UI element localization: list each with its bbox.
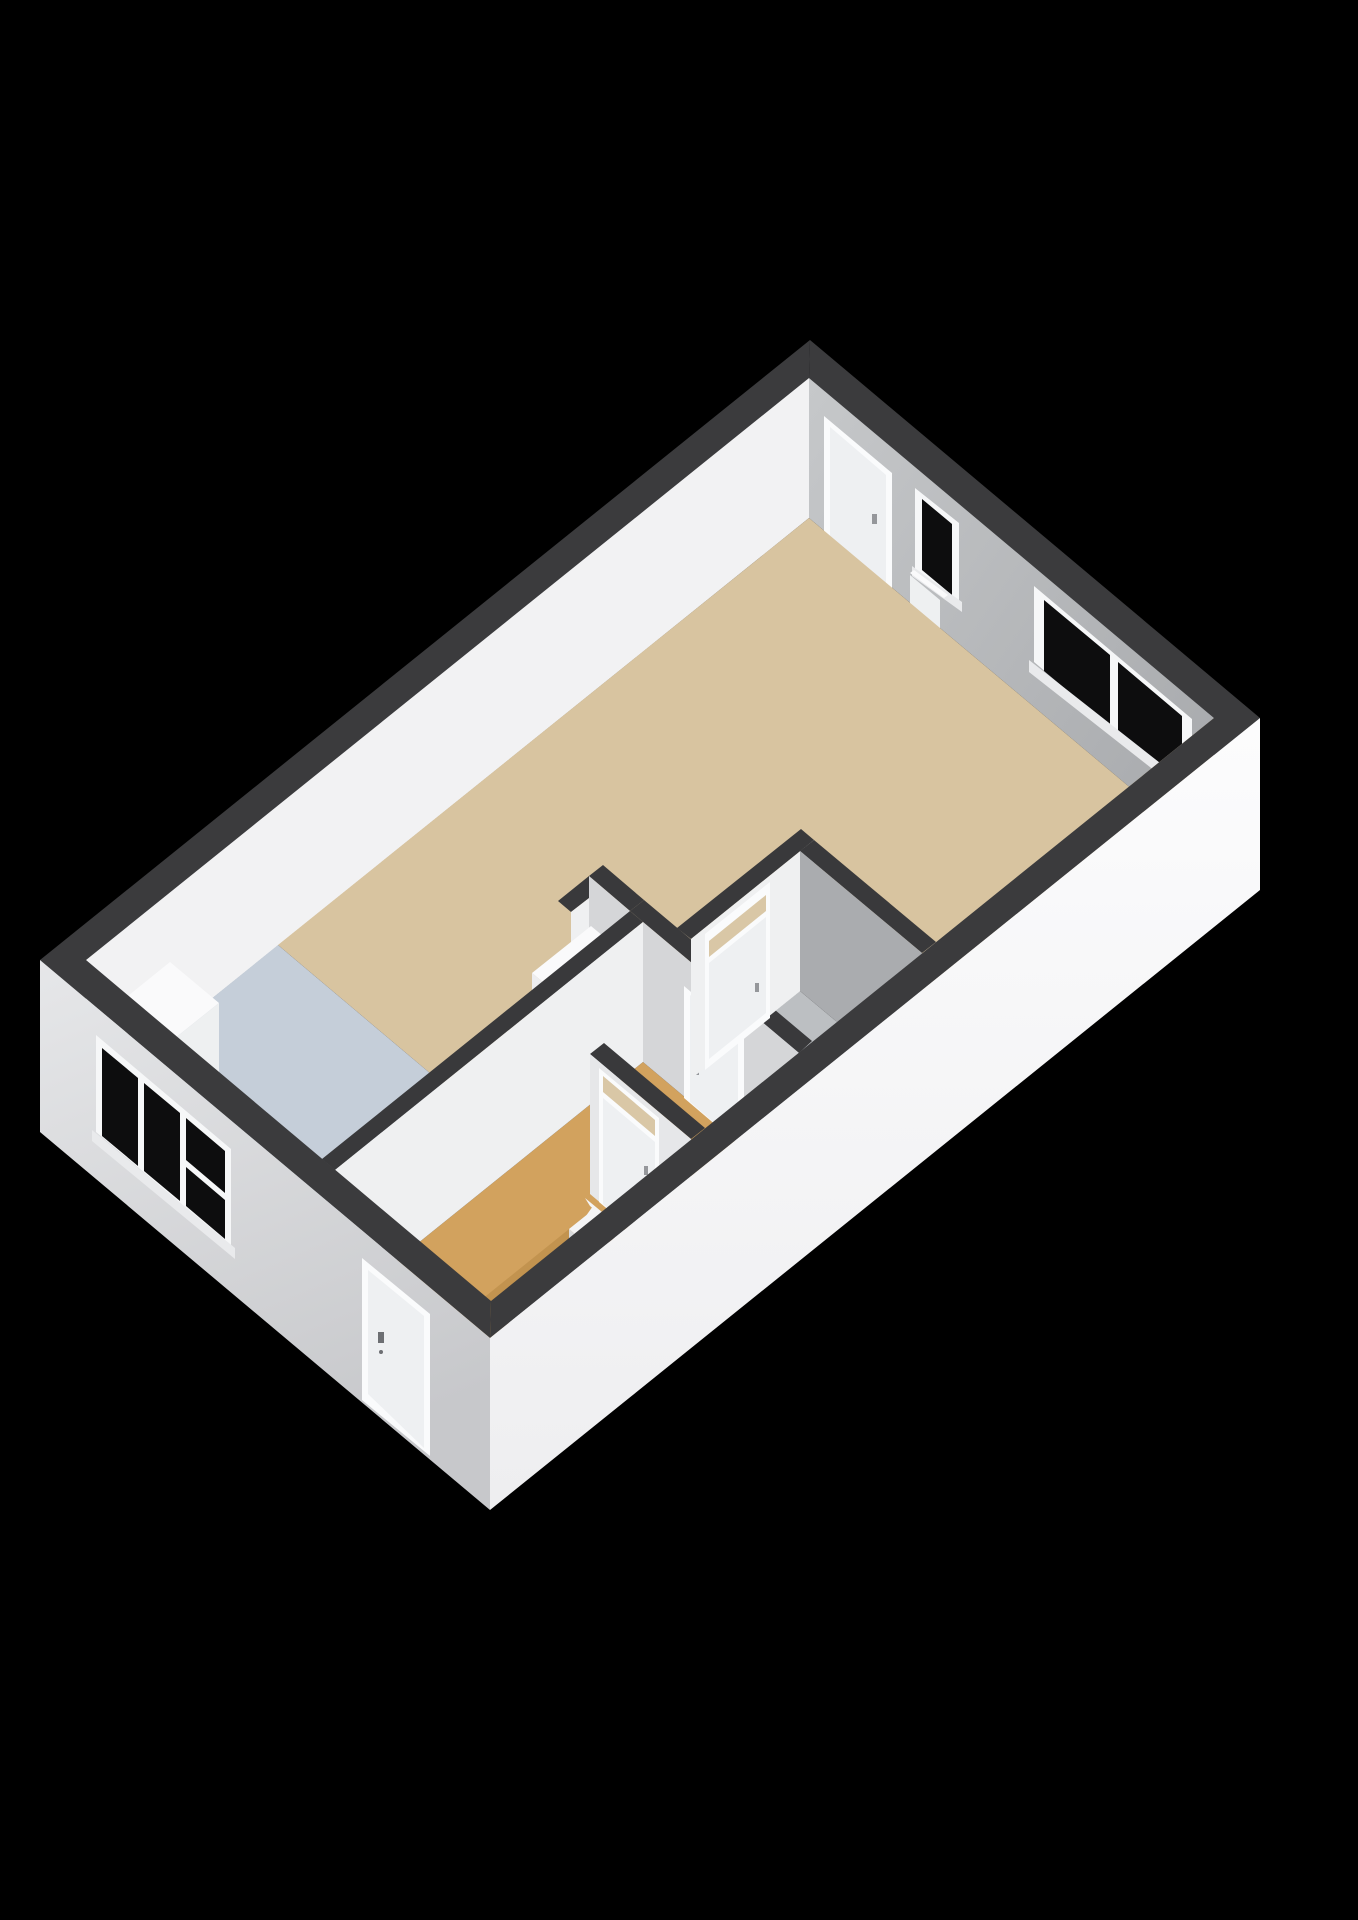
front-door-handle-icon xyxy=(378,1332,384,1343)
stair-door-handle-icon xyxy=(644,1166,648,1175)
bathroom-transom-door-handle-icon xyxy=(755,983,759,992)
floorplan-canvas xyxy=(0,0,1358,1920)
front-door-keyhole-icon xyxy=(379,1350,383,1354)
floorplan-3d-render xyxy=(0,0,1358,1920)
apartment-door-handle-icon xyxy=(872,514,877,524)
